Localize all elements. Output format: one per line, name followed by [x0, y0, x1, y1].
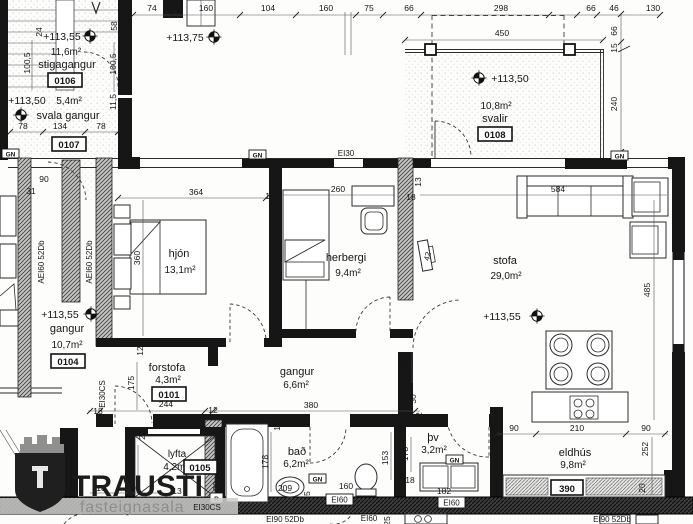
room-name: herbergi [326, 252, 366, 264]
dim: 12 [414, 412, 424, 422]
dim: 153 [380, 451, 390, 465]
dim: 18 [405, 475, 415, 485]
dim: 170 [126, 457, 136, 471]
room-area: 29,0m² [490, 271, 522, 282]
room-number: 0106 [48, 73, 82, 87]
room-name: hjón [169, 248, 190, 260]
room-area: 6,6m² [283, 380, 309, 391]
elevation-label: +113,55 [43, 31, 81, 43]
dim: 90 [641, 423, 651, 433]
room-name: bað [288, 446, 306, 458]
elevation-label: +113,75 [166, 32, 204, 44]
double-bed [114, 205, 206, 309]
room-area: 11,6m² [51, 47, 82, 58]
wall-label: AEI60 52Db [85, 240, 94, 284]
dim: 74 [147, 3, 157, 13]
dim: 78 [18, 121, 28, 131]
desk [352, 186, 394, 234]
dining-table [546, 331, 612, 389]
ei60-text: EI60 [331, 496, 348, 505]
gn-text: GN [253, 153, 263, 160]
kitchen-island [532, 392, 628, 422]
logo: EI30CS TRAUSTI fasteignasala [0, 435, 238, 516]
wall-label: AEI60 52Db [37, 240, 46, 284]
ei60-tag: EI60 [438, 497, 465, 508]
gn-text: GN [450, 458, 460, 465]
room-name: gangur [280, 366, 315, 378]
gn-tag: GN [2, 149, 19, 159]
dim: 178 [260, 455, 270, 469]
dim: 58 [109, 21, 119, 31]
elevation-label: +113,55 [41, 309, 79, 321]
dim: 90 [39, 174, 49, 184]
dim: 100,5 [108, 53, 118, 75]
room-area: 13,1m² [164, 265, 196, 276]
dim: 18 [406, 192, 416, 202]
dim: 260 [331, 184, 345, 194]
gn-tag: GN [249, 150, 266, 160]
dim: 160 [199, 3, 213, 13]
dim: 134 [53, 121, 67, 131]
dim: 175 [126, 376, 136, 390]
dim: 380 [304, 400, 318, 410]
dim: 66 [609, 26, 619, 36]
room-name: lyfta [168, 449, 187, 460]
room-area: 9,8m² [560, 460, 586, 471]
dim: 160 [319, 3, 333, 13]
wall-label: EI30CS [193, 503, 221, 512]
dim: 364 [189, 187, 203, 197]
column [564, 44, 575, 55]
dim: 209 [278, 483, 292, 493]
dim: 20 [137, 430, 147, 440]
counter-tag-text: 390 [559, 484, 575, 495]
room-area: 5,4m² [56, 96, 82, 107]
floor-plan: 74 160 104 160 75 66 298 66 46 130 450 6… [0, 0, 693, 524]
dim: 15 [609, 43, 619, 53]
dim: 66 [586, 3, 596, 13]
dim: 42 [422, 250, 433, 261]
dim: 11,5 [108, 94, 118, 110]
room-number-text: 0104 [57, 357, 79, 368]
column [425, 44, 436, 55]
room-area: 10,7m² [51, 340, 83, 351]
dim: 90 [509, 423, 519, 433]
logo-subtitle: fasteignasala [80, 499, 184, 516]
wall-label: EI60 [361, 514, 378, 523]
dim: 360 [132, 251, 142, 265]
dim: 450 [495, 28, 509, 38]
gn-text: GN [313, 477, 323, 484]
gn-tag: GN [611, 151, 628, 161]
dim: 20 [637, 483, 647, 493]
dim: 298 [494, 3, 508, 13]
wall-label: EI90 52Db [593, 515, 631, 524]
room-area: 4,3m² [155, 375, 181, 386]
toilet [355, 464, 377, 496]
wall-label: EI30 [338, 149, 355, 158]
room-name: svala gangur [37, 110, 100, 122]
room-name: stofa [493, 255, 518, 267]
dim: 252 [640, 442, 650, 456]
ei60-tag: EI60 [326, 494, 353, 505]
dim: 31 [26, 186, 36, 196]
logo-shield-icon [15, 435, 65, 512]
gn-tag: GN [309, 474, 326, 484]
room-number-text: 0106 [54, 76, 75, 87]
room-number: 0108 [478, 127, 512, 141]
dim: 46 [609, 3, 619, 13]
dim: 30 [408, 394, 418, 404]
elevation-label: +113,50 [8, 95, 46, 107]
dim: 160 [339, 481, 353, 491]
dim: 130 [646, 3, 660, 13]
elevation-label: +113,50 [491, 73, 529, 85]
bath-door-swing [310, 427, 346, 463]
dim: 78 [96, 121, 106, 131]
dim: 12 [272, 421, 282, 431]
floor-plan-drawing: 74 160 104 160 75 66 298 66 46 130 450 6… [0, 0, 693, 524]
room-area: 6,2m² [283, 459, 309, 470]
dim: 75 [364, 3, 374, 13]
room-name: svalir [482, 113, 508, 125]
room-number-text: 0108 [484, 130, 505, 141]
wall-label: EI30CS [98, 380, 107, 408]
room-number-text: 0101 [158, 390, 180, 401]
dim: 104 [261, 3, 275, 13]
room-name: þv [427, 432, 439, 444]
wall-label: EI90 52Db [266, 515, 304, 524]
single-bed [283, 190, 329, 330]
dim: 178 [400, 447, 410, 461]
sofa [517, 176, 633, 218]
dim: 25 [382, 516, 392, 524]
room-number: 0107 [52, 137, 86, 151]
room-area: 9,4m² [335, 268, 361, 279]
room-area: 10,8m² [480, 101, 512, 112]
stofa-door-swing [413, 300, 461, 348]
ei60-text: EI60 [443, 499, 460, 508]
room-name: gangur [50, 323, 85, 335]
corridor-wall [96, 158, 112, 346]
laundry-door-swing [448, 426, 489, 457]
dim: 210 [570, 423, 584, 433]
room-area: 3,2m² [421, 445, 447, 456]
room-name: forstofa [149, 362, 187, 374]
dim: 584 [551, 184, 565, 194]
gn-text: GN [615, 154, 625, 161]
dim: 25 [302, 491, 312, 501]
dim: 100,5 [22, 52, 32, 74]
room-name: stigagangur [38, 59, 96, 71]
dim: 66 [404, 3, 414, 13]
room-name: eldhús [559, 447, 592, 459]
dim: 485 [642, 283, 652, 297]
room-number: 0101 [152, 387, 186, 401]
dim: 13 [413, 177, 423, 187]
dim: 12 [430, 417, 440, 427]
hjon-door-swing [230, 304, 266, 342]
dim: 240 [609, 97, 619, 111]
room-number-text: 0107 [58, 140, 79, 151]
gn-tag: GN [446, 455, 463, 465]
dim: 182 [437, 486, 451, 496]
dim: 12 [208, 405, 218, 415]
room-number: 0104 [51, 354, 85, 368]
dim: 20 [211, 481, 221, 491]
elevation-label: +113,55 [483, 311, 521, 323]
herbergi-door-swing [356, 297, 390, 331]
entry-door-swing [115, 386, 152, 424]
counter-tag: 390 [551, 480, 583, 495]
armchairs [630, 178, 668, 258]
dim: 12 [135, 346, 145, 356]
dim: 120 [401, 360, 411, 374]
dim: 12 [265, 191, 275, 201]
gn-text: GN [6, 152, 16, 159]
